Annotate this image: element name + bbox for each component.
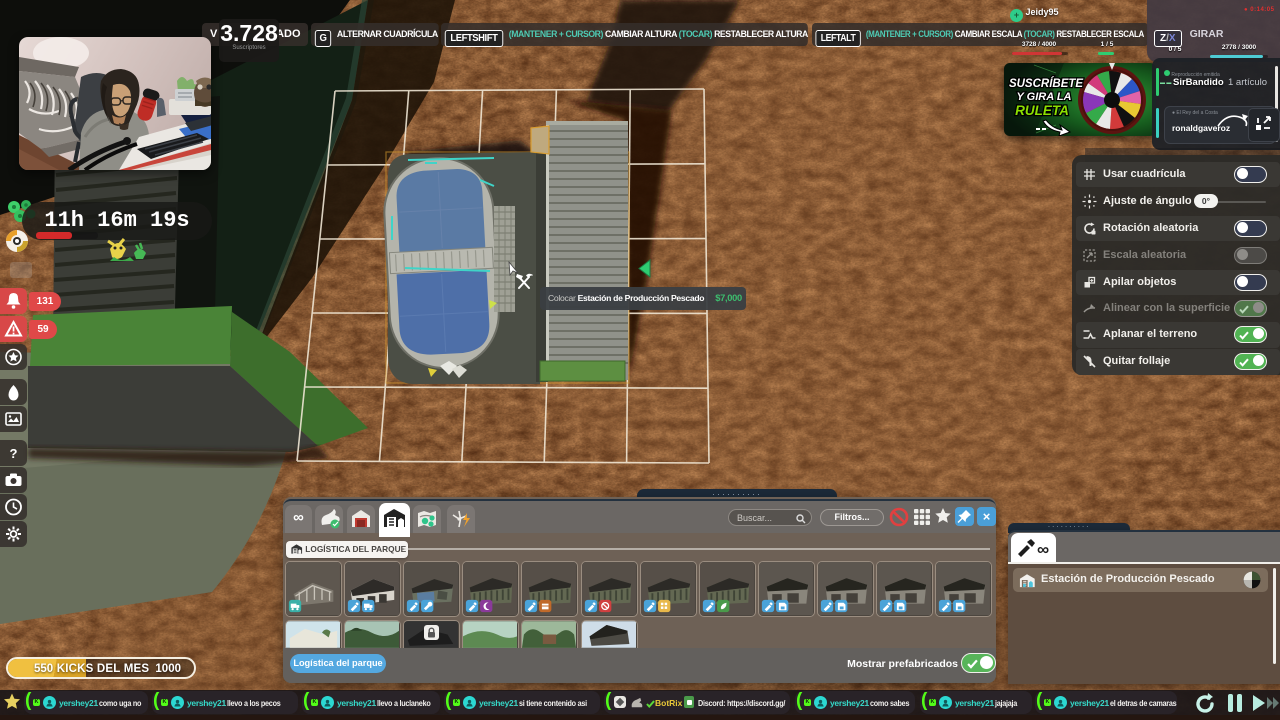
svg-text:Y GIRA LA: Y GIRA LA xyxy=(1016,91,1071,103)
svg-text:RULETA: RULETA xyxy=(1015,103,1069,118)
svg-text:∞: ∞ xyxy=(1037,540,1049,559)
svg-text:?: ? xyxy=(10,446,18,461)
svg-text:SUSCRÍBETE: SUSCRÍBETE xyxy=(1009,77,1083,90)
